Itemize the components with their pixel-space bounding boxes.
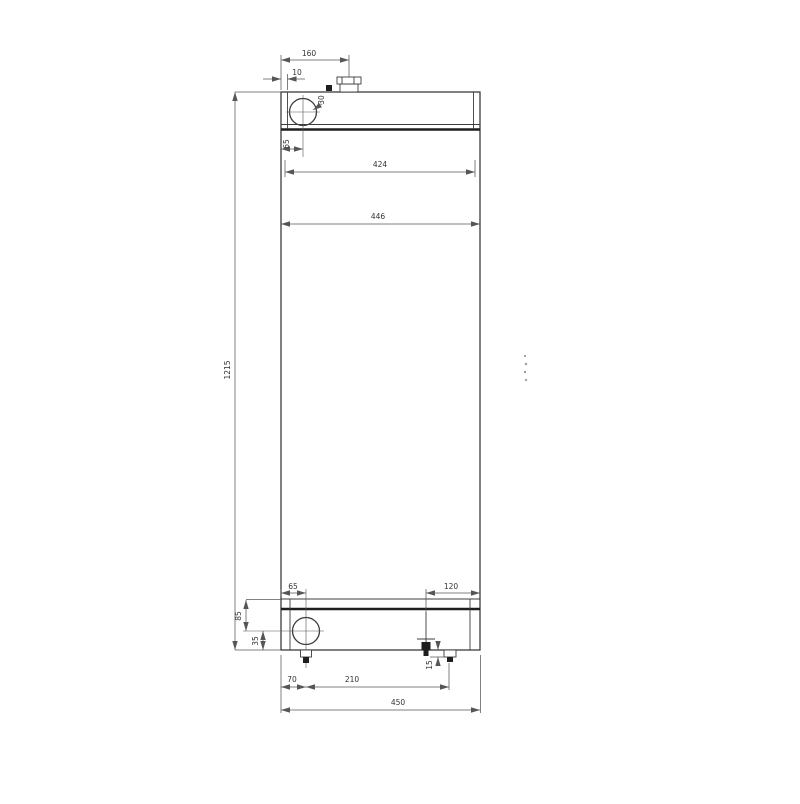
dim-top-port-dia: 30 <box>313 95 326 110</box>
artifact-dots <box>524 355 527 381</box>
dim-label-right-fitting-inset: 120 <box>444 582 459 591</box>
dim-label-fitting-span: 210 <box>345 675 360 684</box>
dim-label-drain-offset: 70 <box>287 675 297 684</box>
dim-edge-inset: 10 <box>263 68 305 90</box>
dim-label-core-width: 424 <box>373 160 388 169</box>
dim-label-top-port-offset: 65 <box>282 139 291 149</box>
overflow-nipple <box>326 85 332 91</box>
drain-stub-tip <box>303 657 309 663</box>
dim-bottom-port-offset: 65 <box>281 582 306 597</box>
dot <box>524 355 526 357</box>
fitting1-stub <box>424 650 429 656</box>
dim-label-top-port-dia: 30 <box>317 95 326 105</box>
drain-stub <box>301 650 312 657</box>
dim-label-neck-offset: 160 <box>302 49 317 58</box>
top-inlet-port <box>286 95 320 157</box>
dot <box>525 379 527 381</box>
dim-right-fitting-inset: 120 <box>426 582 480 612</box>
dim-label-header-depth: 85 <box>234 611 243 621</box>
dim-label-overall-height: 1215 <box>223 360 232 379</box>
core-outer-rect <box>281 92 480 650</box>
fitting2-tip <box>447 657 453 662</box>
dim-label-stub-length: 15 <box>425 660 434 670</box>
fitting2-body <box>444 650 456 657</box>
dot <box>524 371 526 373</box>
technical-drawing-page: 160 10 30 65 424 446 1215 65 <box>0 0 800 800</box>
filler-neck <box>326 77 361 92</box>
dim-label-tank-width: 446 <box>371 212 386 221</box>
dim-overall-width: 450 <box>281 655 481 713</box>
dim-label-overall-width: 450 <box>391 698 406 707</box>
filler-cap <box>337 77 361 84</box>
dim-label-edge-inset: 10 <box>292 68 302 77</box>
radiator-drawing-svg: 160 10 30 65 424 446 1215 65 <box>0 0 800 800</box>
fitting1-body <box>422 642 431 650</box>
filler-neck-body <box>340 84 358 92</box>
dim-tank-width: 446 <box>281 212 480 224</box>
dot <box>525 363 527 365</box>
radiator-outline <box>281 92 480 650</box>
dim-overall-height: 1215 <box>223 92 281 650</box>
dim-port-center-height: 35 <box>251 631 263 650</box>
dim-label-port-center-height: 35 <box>251 636 260 646</box>
dim-top-port-offset: 65 <box>281 139 303 149</box>
dim-header-depth: 85 <box>234 600 281 632</box>
dim-label-bottom-port-offset: 65 <box>288 582 298 591</box>
dim-drain-offset: 70 <box>281 655 306 713</box>
dim-core-width: 424 <box>285 160 475 177</box>
bottom-outlet-port <box>243 589 324 668</box>
bottom-right-fittings <box>417 612 456 662</box>
